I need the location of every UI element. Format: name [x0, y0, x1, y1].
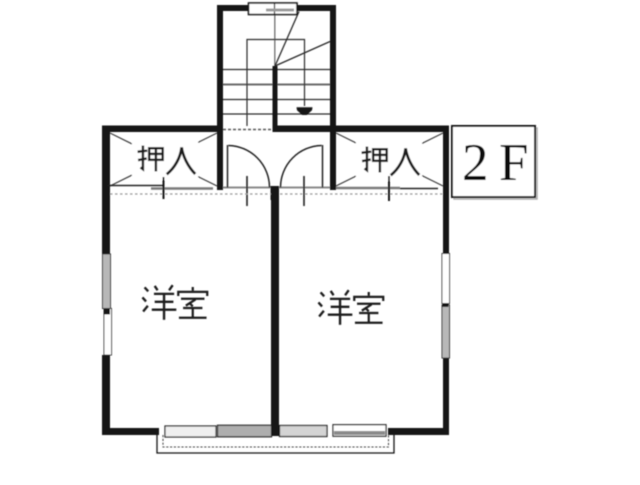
svg-text:2: 2 — [462, 134, 489, 192]
svg-text:F: F — [499, 134, 528, 192]
